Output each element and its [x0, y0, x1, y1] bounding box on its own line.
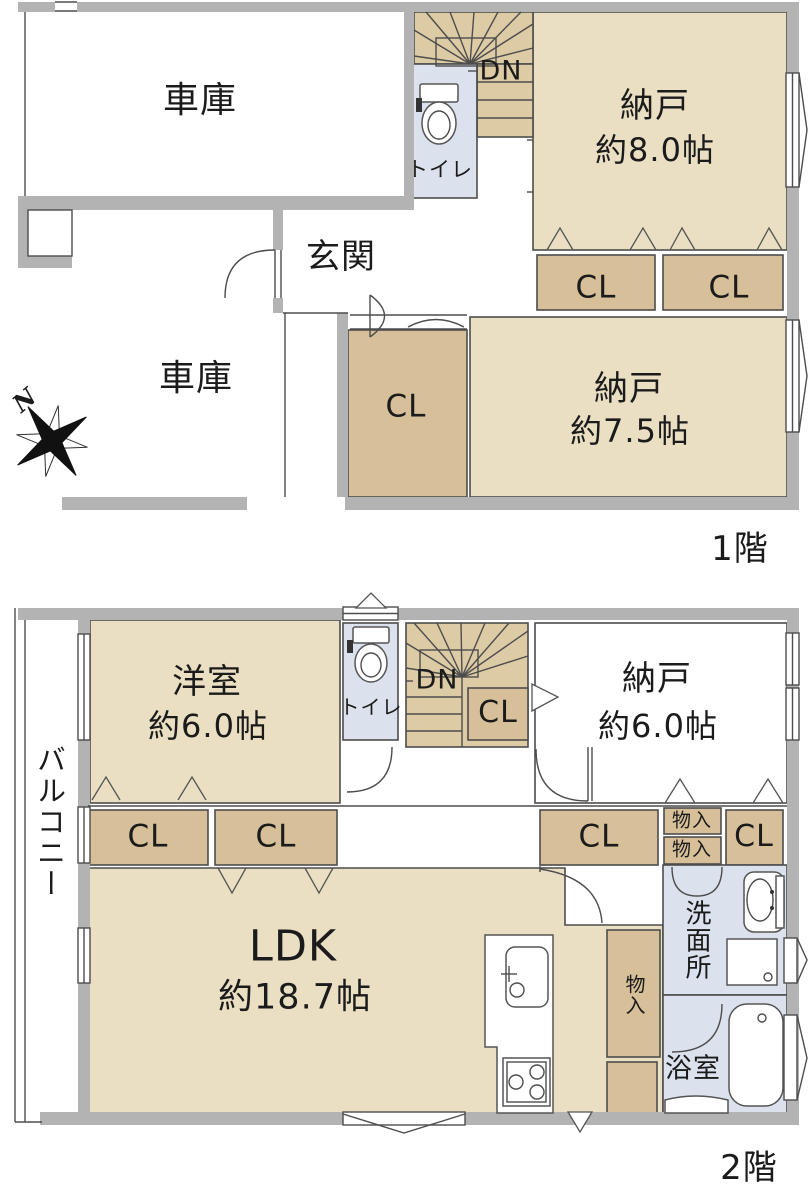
floorplan-drawing	[0, 0, 808, 1200]
kitchen-sink	[506, 947, 548, 1007]
floorplan-canvas: 車庫 納戸 約8.0帖 DN トイレ 玄関 CL CL CL 納戸 約7.5帖 …	[0, 0, 808, 1200]
washing-machine	[727, 939, 777, 985]
room-label-storage6-name: 納戸	[622, 662, 692, 696]
storage-small-label-c: 物入	[624, 974, 644, 1016]
room-label-toilet-1f: トイレ	[407, 160, 473, 181]
room-ldk-fill	[88, 868, 663, 1113]
sliding-door-1f	[350, 315, 467, 329]
kitchen-stove	[503, 1058, 550, 1106]
counter-box-fill	[607, 1062, 657, 1113]
room-label-storage8-size: 約8.0帖	[595, 134, 715, 166]
floor1-label: 1階	[711, 532, 769, 566]
room-label-bathroom: 浴室	[665, 1056, 721, 1083]
window-storage75-right	[786, 320, 807, 432]
floor2-label: 2階	[720, 1151, 778, 1185]
closet-label-2f-c: CL	[579, 822, 620, 853]
room-label-ldk-size: 約18.7帖	[218, 981, 372, 1016]
balcony-windows	[78, 634, 90, 983]
stairs-label-dn-1f: DN	[480, 58, 523, 85]
room-label-toilet-2f: トイレ	[340, 697, 403, 717]
room-label-western-size: 約6.0帖	[148, 710, 268, 742]
closet-label-2f-a: CL	[128, 822, 169, 853]
closet-label-1f-a: CL	[576, 273, 617, 304]
window-toilet-2f	[343, 593, 398, 620]
room-label-garage-bottom: 車庫	[159, 361, 233, 397]
closet-label-1f-c: CL	[386, 392, 427, 423]
closet-label-stairs: CL	[478, 698, 518, 728]
closet-label-2f-d: CL	[734, 822, 774, 852]
closet-label-1f-b: CL	[709, 273, 750, 304]
window-storage8-right	[786, 73, 807, 187]
window-bathroom	[784, 1015, 807, 1100]
room-label-garage-top: 車庫	[163, 83, 237, 119]
room-label-washroom: 洗面所	[683, 900, 709, 981]
toilet-2f-door	[347, 747, 392, 792]
window-garage-top	[55, 1, 77, 12]
window-washroom	[784, 938, 807, 983]
room-label-balcony: バルコニー	[35, 745, 64, 900]
window-ldk-bottom	[343, 1112, 465, 1133]
room-label-storage75-name: 納戸	[594, 372, 664, 406]
washbasin	[744, 872, 784, 932]
storage-small-label-a: 物入	[672, 812, 712, 831]
stairs-label-dn-2f: DN	[416, 667, 459, 694]
entrance-door	[225, 250, 281, 298]
room-label-ldk-name: LDK	[249, 926, 337, 969]
room-label-storage6-size: 約6.0帖	[598, 710, 718, 742]
room-label-western-name: 洋室	[172, 665, 242, 699]
room-label-storage8-name: 納戸	[620, 89, 690, 123]
room-label-storage75-size: 約7.5帖	[570, 415, 690, 447]
storage-small-label-b: 物入	[672, 841, 712, 860]
closet-label-2f-b: CL	[256, 822, 297, 853]
room-label-entrance: 玄関	[306, 240, 376, 274]
garage-wall-bar	[62, 497, 247, 510]
